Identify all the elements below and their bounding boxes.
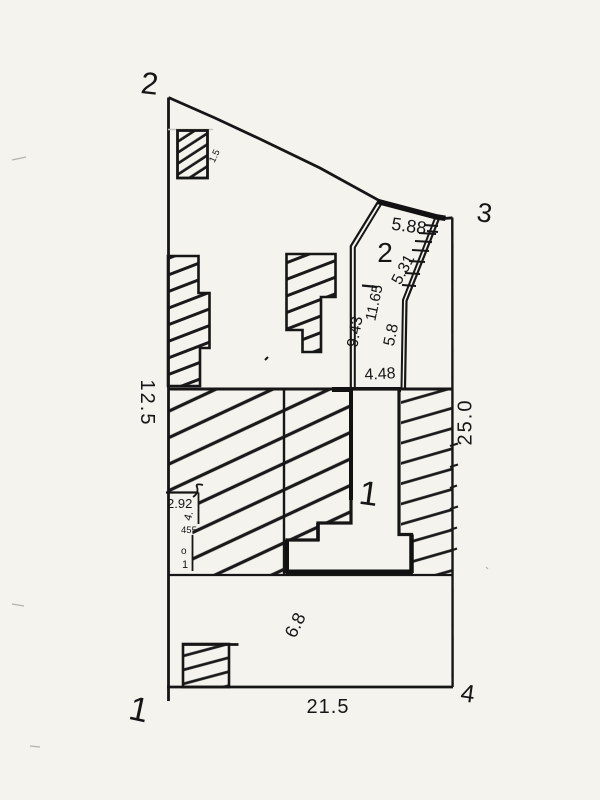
svg-text:4.48: 4.48 <box>364 365 396 384</box>
svg-text:25.0: 25.0 <box>455 399 477 446</box>
svg-text:2.92: 2.92 <box>167 496 192 511</box>
svg-text:455: 455 <box>181 525 197 536</box>
svg-text:21.5: 21.5 <box>307 696 350 718</box>
svg-text:12.5: 12.5 <box>136 380 158 427</box>
svg-text:2: 2 <box>377 237 393 268</box>
svg-text:2: 2 <box>139 65 160 102</box>
svg-text:1: 1 <box>182 559 188 571</box>
svg-text:o: o <box>181 546 187 557</box>
